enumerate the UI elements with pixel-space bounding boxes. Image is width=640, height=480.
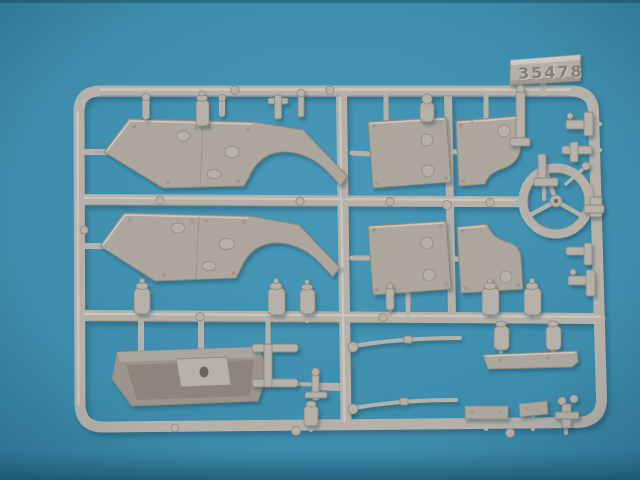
sprue-photo-canvas: 35478 35478 (0, 0, 640, 480)
sprue-photo: 35478 35478 (0, 0, 640, 480)
photo-vignette (0, 0, 640, 480)
